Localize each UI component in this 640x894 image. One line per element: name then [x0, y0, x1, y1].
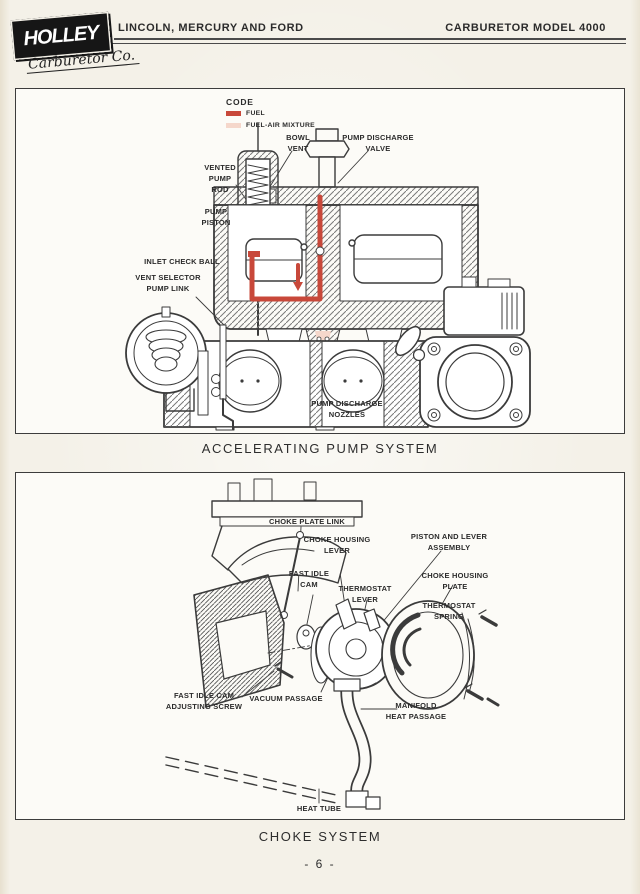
header-rule-top: [114, 38, 626, 40]
label-thermostat-lever: THERMOSTAT LEVER: [339, 584, 392, 606]
fuel-color-swatch: [226, 111, 241, 116]
label-piston-and-lever-assembly: PISTON AND LEVER ASSEMBLY: [411, 532, 487, 554]
label-choke-housing-lever: CHOKE HOUSING LEVER: [304, 535, 371, 557]
legend-label-fuel: FUEL: [246, 110, 265, 117]
label-fast-idle-cam-adjusting-screw: FAST IDLE CAM ADJUSTING SCREW: [166, 691, 242, 713]
label-vent-selector-pump-link: VENT SELECTOR PUMP LINK: [135, 273, 200, 295]
figure1-caption: ACCELERATING PUMP SYSTEM: [0, 441, 640, 456]
fuel-air-mixture-color-swatch: [226, 123, 241, 128]
holley-logo-text: HOLLEY: [23, 21, 100, 50]
label-vented-pump-rod: VENTED PUMP ROD: [204, 163, 236, 196]
label-pump-piston: PUMP PISTON: [202, 207, 231, 229]
label-vacuum-passage: VACUUM PASSAGE: [249, 694, 322, 705]
choke-system-figure: CHOKE PLATE LINK CHOKE HOUSING LEVER PIS…: [15, 472, 625, 820]
header-right-title: CARBURETOR MODEL 4000: [445, 22, 606, 34]
legend-label-fuel-air-mixture: FUEL-AIR MIXTURE: [246, 122, 315, 129]
legend-item-fuel: FUEL: [226, 110, 265, 117]
figure2-caption: CHOKE SYSTEM: [0, 829, 640, 844]
label-thermostat-spring: THERMOSTAT SPRING: [423, 601, 476, 623]
accelerating-pump-drawing: [16, 89, 622, 431]
legend-item-fuel-air-mixture: FUEL-AIR MIXTURE: [226, 122, 315, 129]
label-manifold-heat-passage: MANIFOLD HEAT PASSAGE: [386, 701, 446, 723]
label-heat-tube: HEAT TUBE: [297, 804, 341, 815]
label-bowl-vent: BOWL VENT: [286, 133, 310, 155]
legend-title: CODE: [226, 97, 254, 107]
header-rule-bottom: [58, 43, 626, 44]
accelerating-pump-figure: CODE FUEL FUEL-AIR MIXTURE BOWL VENT PUM…: [15, 88, 625, 434]
label-pump-discharge-nozzles: PUMP DISCHARGE NOZZLES: [311, 399, 382, 421]
page-number: - 6 -: [0, 857, 640, 871]
label-choke-plate-link: CHOKE PLATE LINK: [269, 517, 345, 528]
header-left-title: LINCOLN, MERCURY AND FORD: [118, 22, 304, 34]
label-choke-housing-plate: CHOKE HOUSING PLATE: [422, 571, 489, 593]
label-pump-discharge-valve: PUMP DISCHARGE VALVE: [342, 133, 413, 155]
label-inlet-check-ball: INLET CHECK BALL: [144, 257, 220, 268]
label-fast-idle-cam: FAST IDLE CAM: [289, 569, 329, 591]
